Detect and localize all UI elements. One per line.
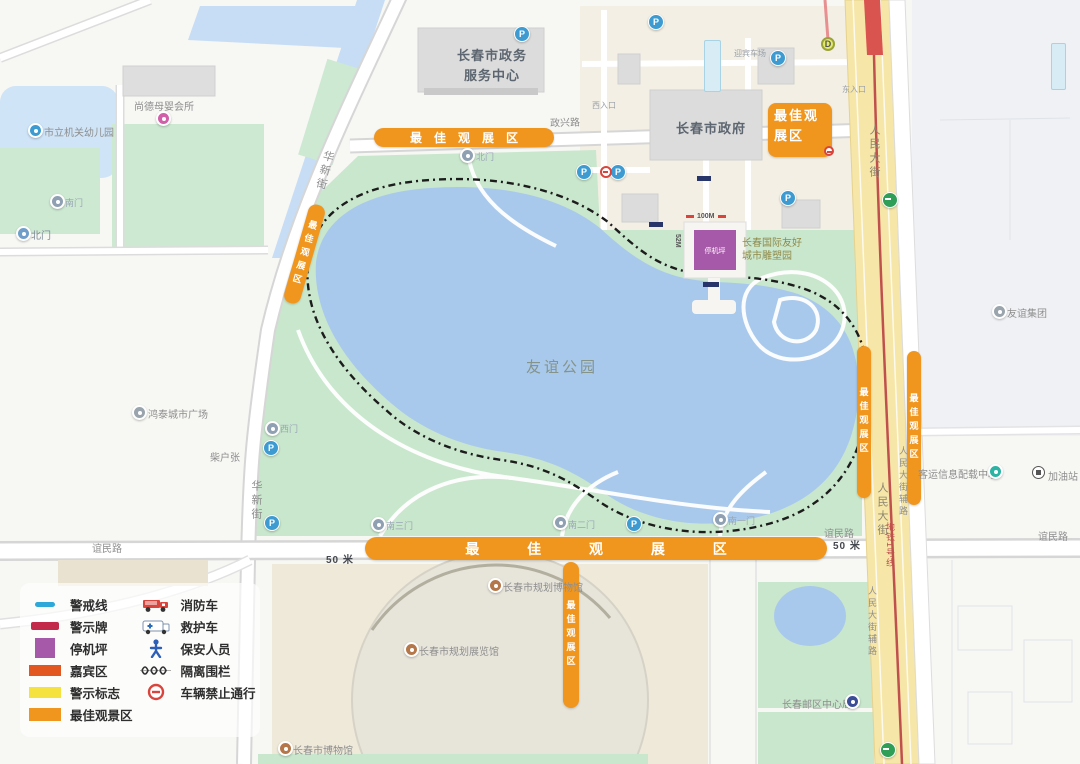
park-name-label: 友谊公园 [526,356,598,377]
road-label-renmin-north: 人民大街 [866,124,882,180]
cargo-center-label: 客运信息配载中心 [918,466,998,481]
fire-truck-icon [137,596,175,613]
isolation-fence-icon [137,663,175,678]
west-entrance-label: 西入口 [592,100,616,111]
parking-letter: P [269,518,275,528]
yingbin-lot-label: 迎宾车场 [734,48,766,59]
metro-station-icon [882,192,898,208]
legend-item-warning-sign: 警示牌 [26,615,133,637]
city-museum-label: 长春市博物馆 [293,742,353,757]
legend-item-guest-area: 嘉宾区 [26,659,133,681]
hongtai-plaza-label: 鸿泰城市广场 [148,406,208,421]
best-viewing-banner-gov: 最佳观展区 [768,103,832,157]
parking-marker: P [263,440,279,456]
south-gate1-label: 南一门 [728,514,755,527]
helipad-width-label: 100M [697,213,715,220]
parking-marker: P [610,164,626,180]
gov-service-center-label: 长春市政务 服务中心 [446,46,538,85]
best-viewing-icon [26,708,64,721]
west-gate-pin [265,421,280,436]
legend-item-ambulance: 救护车 [137,615,256,637]
helipad-height-label: 52M [674,234,681,248]
parking-letter: P [631,519,637,529]
south-gate2-pin [553,515,568,530]
road-label-yimin-east: 谊民路 [1038,528,1068,543]
security-person-icon [137,639,175,658]
road-label-zhengxing: 政兴路 [550,113,581,129]
legend-label: 保安人员 [181,639,231,658]
legend-label: 警示牌 [70,617,108,636]
guest-area-icon [26,665,64,676]
north-gate-label: 北门 [31,227,51,242]
best-viewing-banner-south: 最 佳 观 展 区 [365,537,827,560]
east-entrance-label: 东入口 [842,84,866,95]
legend-label: 警戒线 [70,595,108,614]
best-viewing-banner-east-1: 最佳观展区 [857,346,871,498]
planning-museum-pin [488,578,503,593]
guest-area-bar [697,176,711,181]
legend-item-fence: 隔离围栏 [137,659,256,681]
legend-item-no-vehicles: 车辆禁止通行 [137,681,256,703]
parking-letter: P [785,193,791,203]
shangde-club-pin [156,111,171,126]
gas-station-icon [1032,466,1045,479]
post-center-label: 长春邮区中心局 [782,696,852,711]
youyi-group-pin [992,304,1007,319]
post-center-pin [845,694,860,709]
legend-label: 停机坪 [70,639,108,658]
street-edges [710,560,756,764]
legend-label: 救护车 [181,617,219,636]
north-gate-pin [16,226,31,241]
planning-museum-label: 长春市规划博物馆 [503,579,583,594]
legend-item-helipad: 停机坪 [26,637,133,659]
planning-hall-pin [404,642,419,657]
legend-label: 隔离围栏 [181,661,231,680]
bus-parking-box [1051,43,1066,90]
legend-right-column: 消防车 救护车 [137,593,256,727]
road-label-yimin-west: 谊民路 [92,540,122,555]
park-north-gate-pin [460,148,475,163]
legend-label: 最佳观景区 [70,705,133,724]
warning-mark-icon [26,687,64,698]
ambulance-icon [137,618,175,635]
legend-label: 车辆禁止通行 [181,683,256,702]
gas-station-label: 加油站 [1048,468,1078,483]
helipad-pier-end [692,300,736,314]
kindergarten-pin [28,123,43,138]
legend-label: 警示标志 [70,683,120,702]
map-legend: 警戒线 警示牌 停机坪 嘉宾区 警示标志 最佳观景区 [20,583,260,737]
road-label-fulu-north: 人民大街辅路 [897,446,910,518]
chaihuzhang-label: 柴户张 [210,449,240,464]
road-label-metro-line1: 地铁1号线 [884,522,897,568]
south-gate2-label: 南二门 [568,518,595,531]
small-pond [774,586,846,646]
scale-label-west: 50 米 [326,551,354,566]
warning-mark-icon [718,215,726,218]
legend-item-security: 保安人员 [137,637,256,659]
south-gate1-pin [713,512,728,527]
west-gate-label: 西门 [280,422,298,435]
bus-parking-box [704,40,721,92]
parking-marker: P [576,164,592,180]
sculpture-park-label: 长春国际友好城市雕塑园 [742,238,804,263]
parking-letter: P [615,167,621,177]
guest-area-bar [649,222,663,227]
cordon-line-icon [26,602,64,607]
cargo-center-pin [988,464,1003,479]
guest-area-bar [703,282,719,287]
no-vehicles-icon [137,683,175,701]
south-gate3-label: 南三门 [386,519,413,532]
helipad-width-measure: 100M [686,213,726,220]
road-label-huaxin-south: 华新街 [248,480,264,522]
street [0,0,150,58]
warning-mark-icon [686,215,694,218]
youyi-group-label: 友谊集团 [1007,305,1047,320]
helipad-icon [26,638,64,658]
parking-marker: P [264,515,280,531]
no-entry-icon [600,166,612,178]
subway-exit-letter: D [825,39,832,49]
legend-item-cordon: 警戒线 [26,593,133,615]
green-block [112,124,264,254]
city-gov-label: 长春市政府 [676,118,746,137]
legend-label: 消防车 [181,595,219,614]
city-museum-pin [278,741,293,756]
planning-hall-label: 长春市规划展览馆 [419,643,499,658]
best-viewing-banner-north: 最佳观展区 [374,128,554,147]
no-entry-icon [824,146,834,156]
hongtai-plaza-pin [132,405,147,420]
parking-letter: P [775,53,781,63]
parking-marker: P [626,516,642,532]
metro-line-bar [864,0,883,55]
parking-marker: P [648,14,664,30]
south-gate-pin [50,194,65,209]
warning-sign-icon [26,622,64,630]
street [912,430,1080,432]
green-block [0,148,100,234]
scale-label-east: 50 米 [833,537,861,552]
parking-letter: P [653,17,659,27]
parking-marker: P [780,190,796,206]
legend-item-warning-mark: 警示标志 [26,681,133,703]
metro-station-icon [880,742,896,758]
parking-letter: P [581,167,587,177]
parking-marker: P [514,26,530,42]
gov-service-line2: 服务中心 [446,66,538,86]
south-gate-label: 南门 [65,196,83,209]
helipad-text: 停机坪 [694,246,736,256]
legend-label: 嘉宾区 [70,661,108,680]
road-label-fulu-south: 人民大街辅路 [866,586,879,658]
legend-item-best-viewing: 最佳观景区 [26,703,133,725]
legend-item-fire-truck: 消防车 [137,593,256,615]
parking-marker: P [770,50,786,66]
canal-upper [188,6,360,48]
subway-exit-d-marker: D [821,37,835,51]
parking-letter: P [268,443,274,453]
street [0,250,268,252]
green-block [758,712,874,764]
park-north-gate-label: 北门 [476,150,494,163]
south-gate3-pin [371,517,386,532]
legend-left-column: 警戒线 警示牌 停机坪 嘉宾区 警示标志 最佳观景区 [26,593,133,727]
parking-letter: P [519,29,525,39]
map-canvas[interactable]: 100M 52M 停机坪 最佳观展区 最佳观展区 最佳观展区 最佳观展区 最佳观… [0,0,1080,764]
gov-service-line1: 长春市政务 [446,46,538,66]
kindergarten-label: 市立机关幼儿园 [44,124,114,139]
